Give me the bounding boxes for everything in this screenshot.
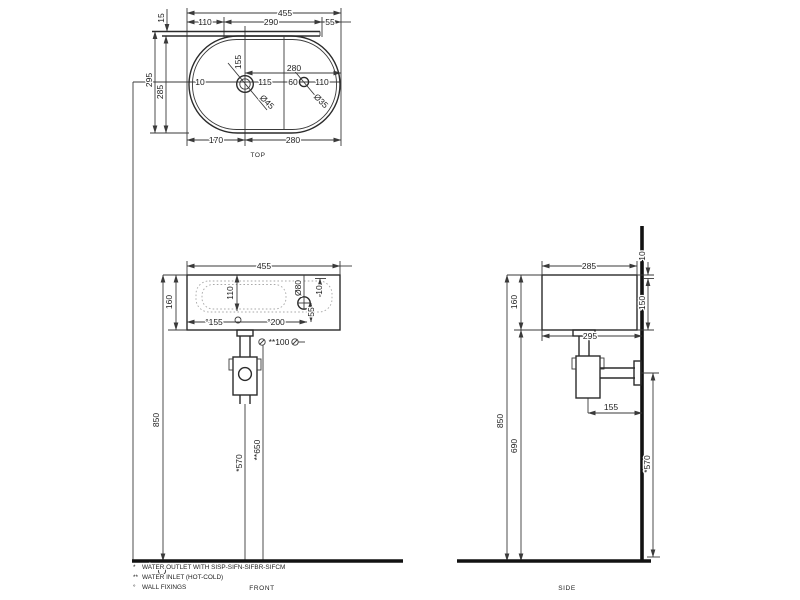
dim-side-wall-drop: 150: [637, 296, 647, 310]
dim-top-back-mid: 290: [264, 17, 278, 27]
footnote-inlet-text: WATER INLET (HOT-COLD): [142, 574, 223, 581]
dim-front-inlet-height: **650: [252, 439, 262, 460]
dim-side-trap-to-wall: 155: [604, 402, 618, 412]
dim-front-rim-height: 850: [151, 413, 161, 427]
top-view: 455 110 290 55 15 295 285 10 155 115 60 …: [133, 8, 351, 560]
dim-top-rim: 10: [195, 77, 205, 87]
basin-side-outline: [542, 275, 637, 330]
footnote-fixings-marker: °: [133, 583, 136, 591]
dim-front-width: 455: [257, 261, 271, 271]
dim-side-underside-height: 690: [509, 439, 519, 453]
dim-top-line-to-tap: 60: [288, 77, 298, 87]
footnote-fixings-text: WALL FIXINGS: [142, 584, 186, 591]
dim-front-rim: 10: [314, 285, 324, 295]
dim-front-fixing-right: °200: [267, 317, 285, 327]
dim-top-drain-to-edge: 280: [287, 63, 301, 73]
dim-side-depth: 285: [582, 261, 596, 271]
basin-hidden-contour-bowl: [202, 285, 286, 310]
wall-outlet-flange: [634, 361, 641, 385]
dim-side-rim-height: 850: [495, 414, 505, 428]
trap-front: [229, 330, 261, 404]
top-view-label: TOP: [250, 152, 265, 159]
side-view: 285 160 850 690 10 150 295 155 *570 SIDE: [457, 226, 660, 592]
dim-front-fixing-left: °155: [205, 317, 223, 327]
footnote-outlet-marker: *: [133, 564, 136, 571]
side-view-label: SIDE: [558, 585, 576, 592]
side-dimension-lines: [507, 262, 653, 561]
dim-top-depth-basin: 285: [155, 85, 165, 99]
dim-top-width: 455: [278, 8, 292, 18]
dim-side-outlet-height: *570: [642, 455, 652, 473]
water-inlet-hole-right: [292, 339, 298, 345]
technical-drawing-page: 455 110 290 55 15 295 285 10 155 115 60 …: [0, 0, 800, 600]
dim-front-height: 160: [164, 295, 174, 309]
dim-top-edge-to-drain: 170: [209, 135, 223, 145]
dim-front-overflow-drop: 55: [306, 307, 316, 317]
footnote-outlet-text: WATER OUTLET WITH SISP-SIFN-SIFBR-SIFCM: [142, 564, 285, 571]
footnote-inlet-marker: **: [133, 574, 138, 581]
dim-side-height: 160: [509, 295, 519, 309]
dim-side-top-gap: 10: [637, 251, 647, 261]
dim-top-ledge: 15: [156, 13, 166, 23]
dim-front-bowl-depth: 110: [225, 286, 235, 300]
dim-top-depth-overall: 295: [144, 73, 154, 87]
dim-top-back-left: 110: [198, 17, 212, 27]
dim-side-depth-overall: 295: [583, 331, 597, 341]
dim-front-overflow-dia: Ø80: [293, 280, 303, 296]
front-view-label: FRONT: [249, 585, 274, 592]
dim-front-outlet-height: *570: [234, 454, 244, 472]
dim-top-drain-to-edge-bottom: 280: [286, 135, 300, 145]
water-inlet-hole-left: [259, 339, 265, 345]
drawing-canvas: 455 110 290 55 15 295 285 10 155 115 60 …: [0, 0, 800, 600]
dim-top-drain-offset: 155: [233, 55, 243, 69]
dim-top-tap-to-edge: 110: [315, 77, 329, 87]
front-view: 455 160 850 110 °155 °200 Ø80 55 10 **10…: [132, 261, 403, 592]
front-dimension-lines: [163, 266, 352, 561]
dim-top-drain-dia: Ø45: [258, 93, 277, 112]
dim-top-back-right: 55: [325, 17, 335, 27]
dim-front-inlet-pitch: **100: [269, 337, 290, 347]
dim-top-drain-to-line: 115: [258, 77, 272, 87]
